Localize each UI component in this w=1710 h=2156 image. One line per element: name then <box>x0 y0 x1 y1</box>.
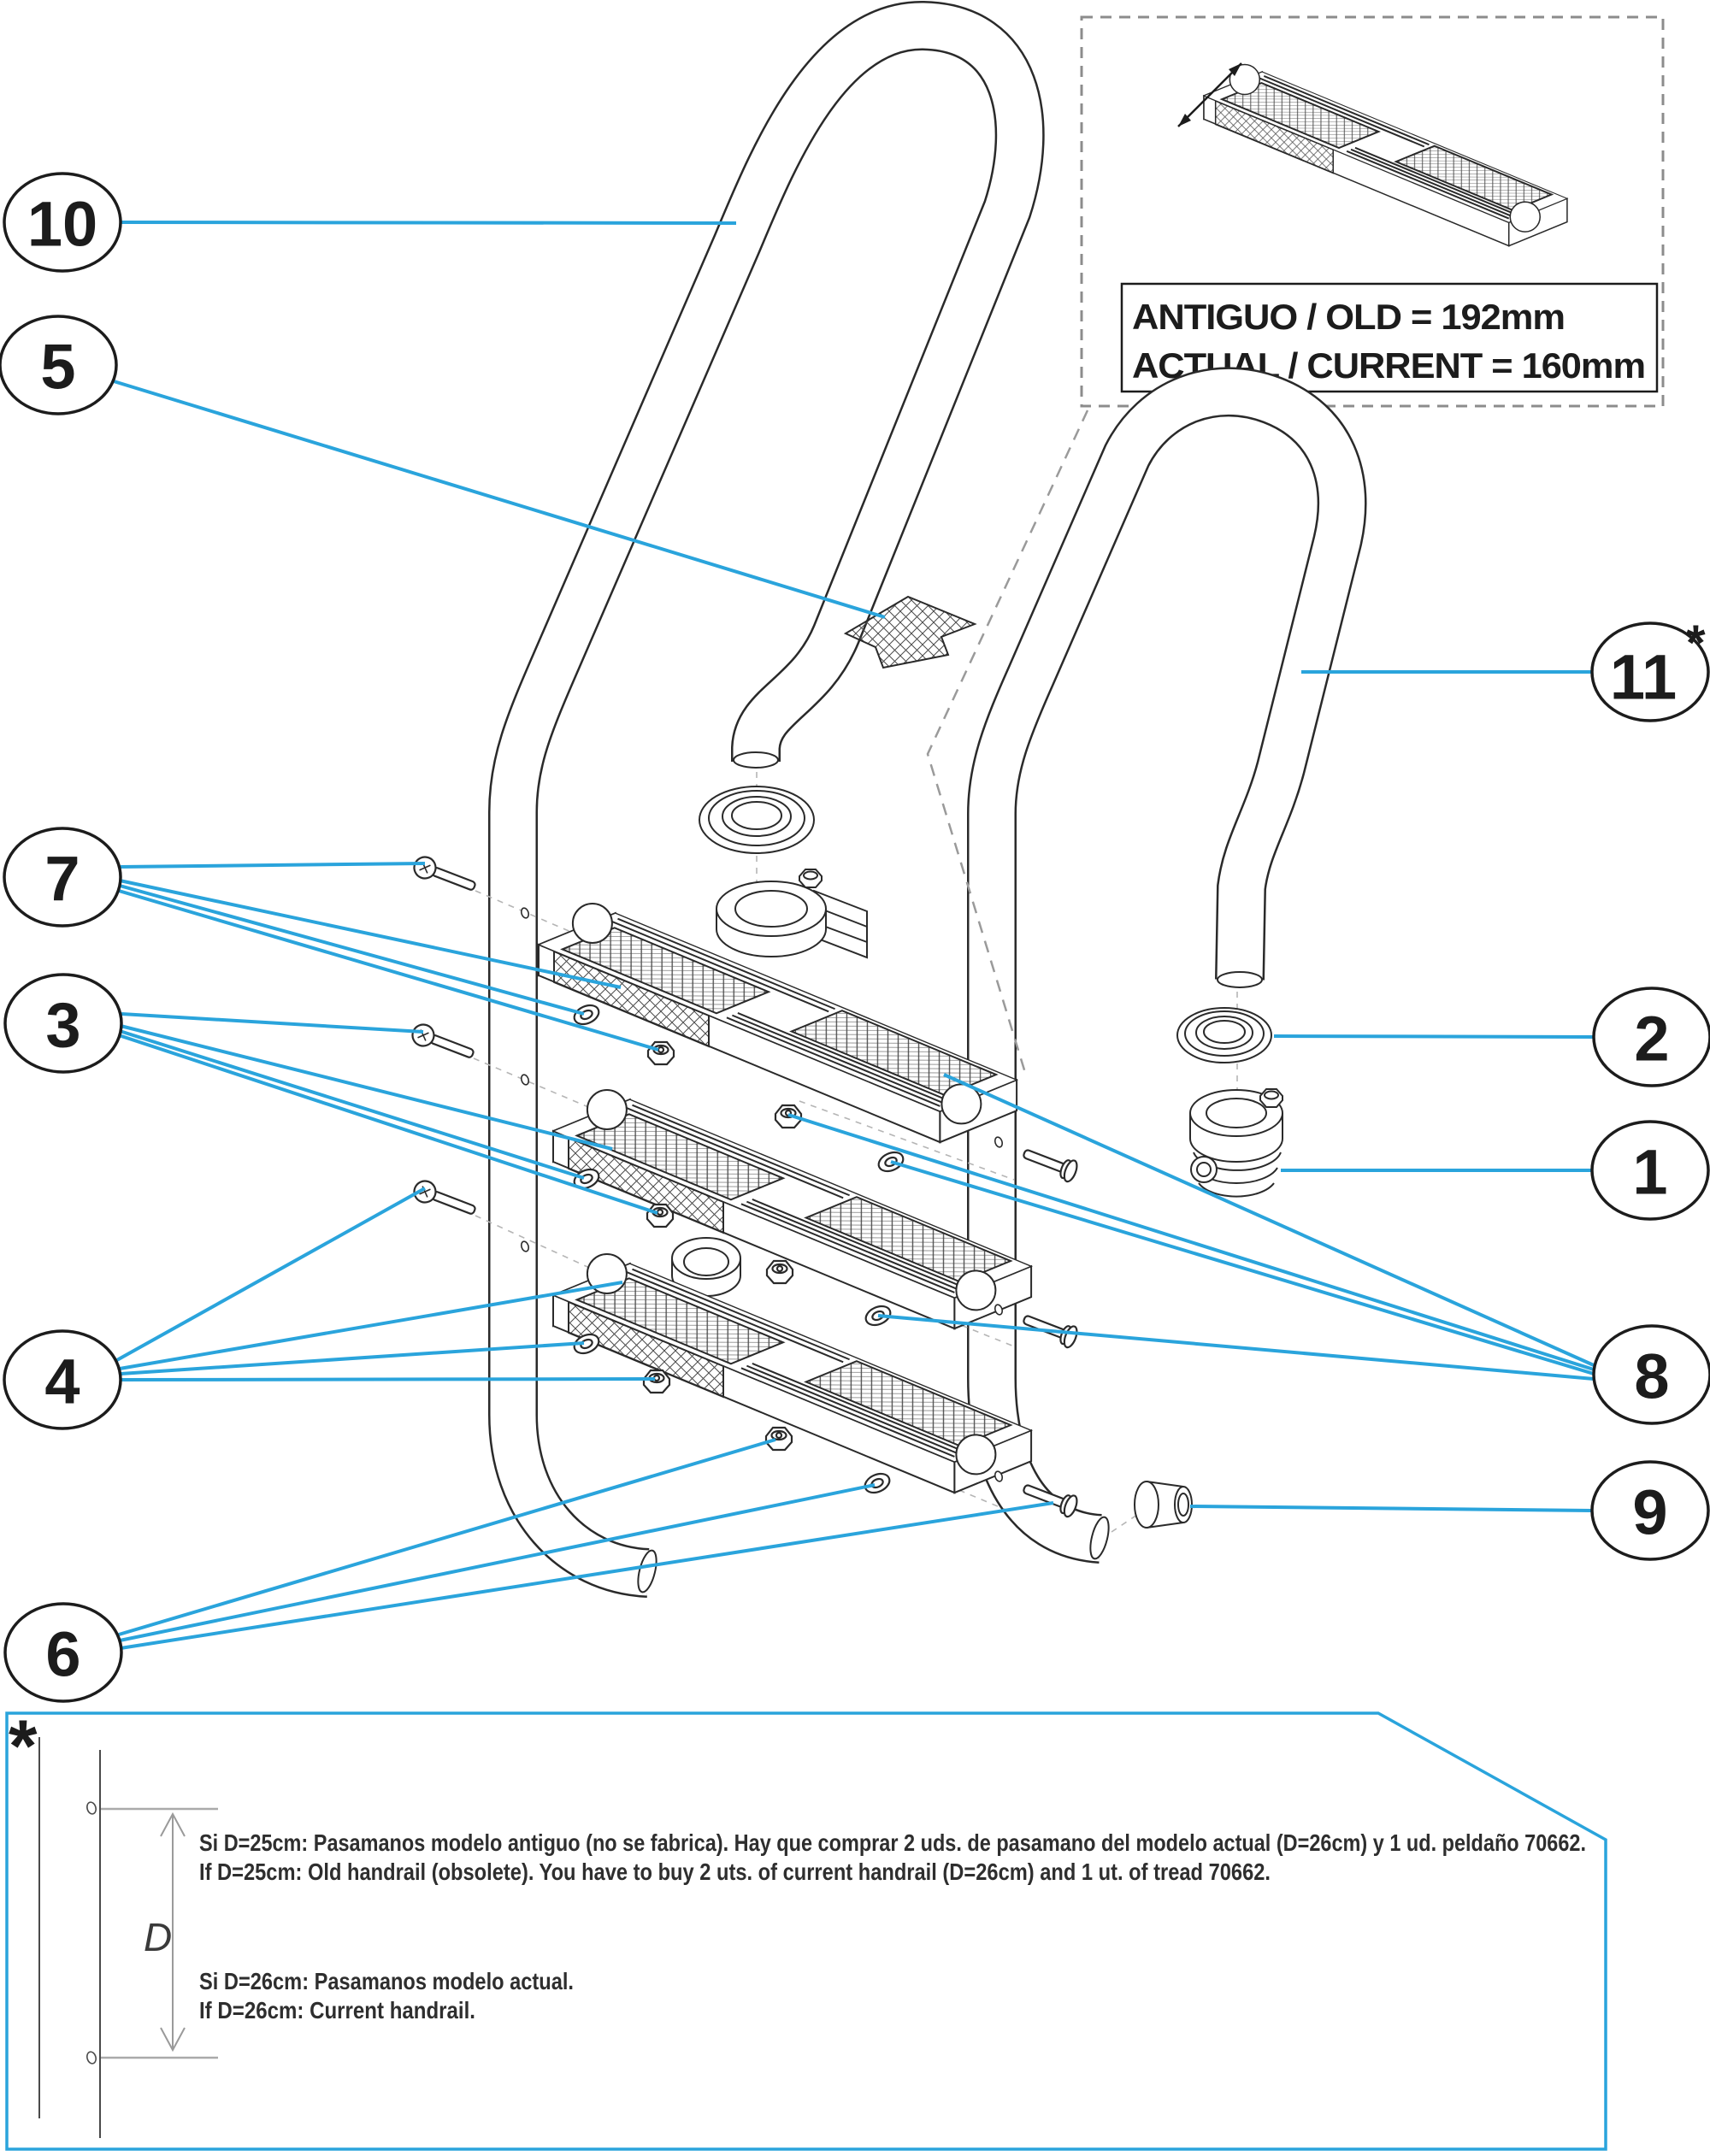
callout-6: 6 <box>5 1604 121 1701</box>
washer <box>862 1470 893 1496</box>
escutcheon-right <box>1177 1008 1271 1063</box>
asterisk-superscript: * <box>1686 616 1706 671</box>
svg-text:5: 5 <box>40 332 75 403</box>
inset-tread-drawing <box>1178 63 1567 246</box>
svg-text:6: 6 <box>45 1619 80 1690</box>
anchor-wedge <box>1190 1089 1282 1197</box>
footnote-line-4: If D=26cm: Current handrail. <box>199 1997 475 2023</box>
hex-nut <box>766 1428 792 1450</box>
end-cap <box>1135 1482 1192 1528</box>
callout-7: 7 <box>4 828 121 926</box>
callout-11: 11 * <box>1592 616 1708 721</box>
inset-line-old: ANTIGUO / OLD = 192mm <box>1132 297 1565 337</box>
svg-text:2: 2 <box>1634 1004 1669 1075</box>
callout-4: 4 <box>4 1331 121 1428</box>
screw <box>411 1178 479 1221</box>
callout-1: 1 <box>1592 1122 1708 1219</box>
hex-nut <box>648 1042 674 1064</box>
asterisk-marker: * <box>9 1705 38 1788</box>
svg-text:8: 8 <box>1634 1341 1669 1412</box>
footnote-border <box>7 1713 1606 2149</box>
hex-nut <box>767 1261 793 1283</box>
svg-text:1: 1 <box>1632 1137 1667 1208</box>
footnote-line-3: Si D=26cm: Pasamanos modelo actual. <box>199 1968 574 1994</box>
callout-5: 5 <box>0 316 116 414</box>
tube-end <box>1218 972 1262 987</box>
diagram-canvas: ANTIGUO / OLD = 192mm ACTUAL / CURRENT =… <box>0 0 1710 2156</box>
exploded-parts-diagram: ANTIGUO / OLD = 192mm ACTUAL / CURRENT =… <box>0 0 1710 2156</box>
footnote-panel: * D Si D=25cm: Pasamanos modelo antiguo … <box>7 1705 1606 2149</box>
footnote-line-2: If D=25cm: Old handrail (obsolete). You … <box>199 1859 1271 1885</box>
hex-nut <box>644 1370 669 1393</box>
bolt <box>1020 1143 1079 1183</box>
svg-text:10: 10 <box>27 189 97 260</box>
callout-8: 8 <box>1594 1326 1710 1423</box>
escutcheon-left <box>699 786 814 853</box>
tread-clamp <box>716 869 867 957</box>
svg-text:9: 9 <box>1632 1477 1667 1548</box>
screw <box>411 854 479 897</box>
callout-3: 3 <box>5 975 121 1072</box>
callout-9: 9 <box>1592 1462 1708 1559</box>
callout-10: 10 <box>4 174 121 271</box>
footnote-line-1: Si D=25cm: Pasamanos modelo antiguo (no … <box>199 1829 1586 1856</box>
svg-text:3: 3 <box>45 990 80 1061</box>
inset-panel: ANTIGUO / OLD = 192mm ACTUAL / CURRENT =… <box>1082 17 1663 406</box>
svg-text:4: 4 <box>44 1346 80 1417</box>
right-handrail <box>992 392 1342 1560</box>
tube-end <box>734 752 778 768</box>
dimension-label: D <box>144 1915 172 1959</box>
hex-nut <box>647 1205 673 1227</box>
svg-text:7: 7 <box>44 844 80 915</box>
callout-2: 2 <box>1594 988 1710 1086</box>
screw <box>410 1022 477 1064</box>
svg-text:11: 11 <box>1610 642 1677 713</box>
